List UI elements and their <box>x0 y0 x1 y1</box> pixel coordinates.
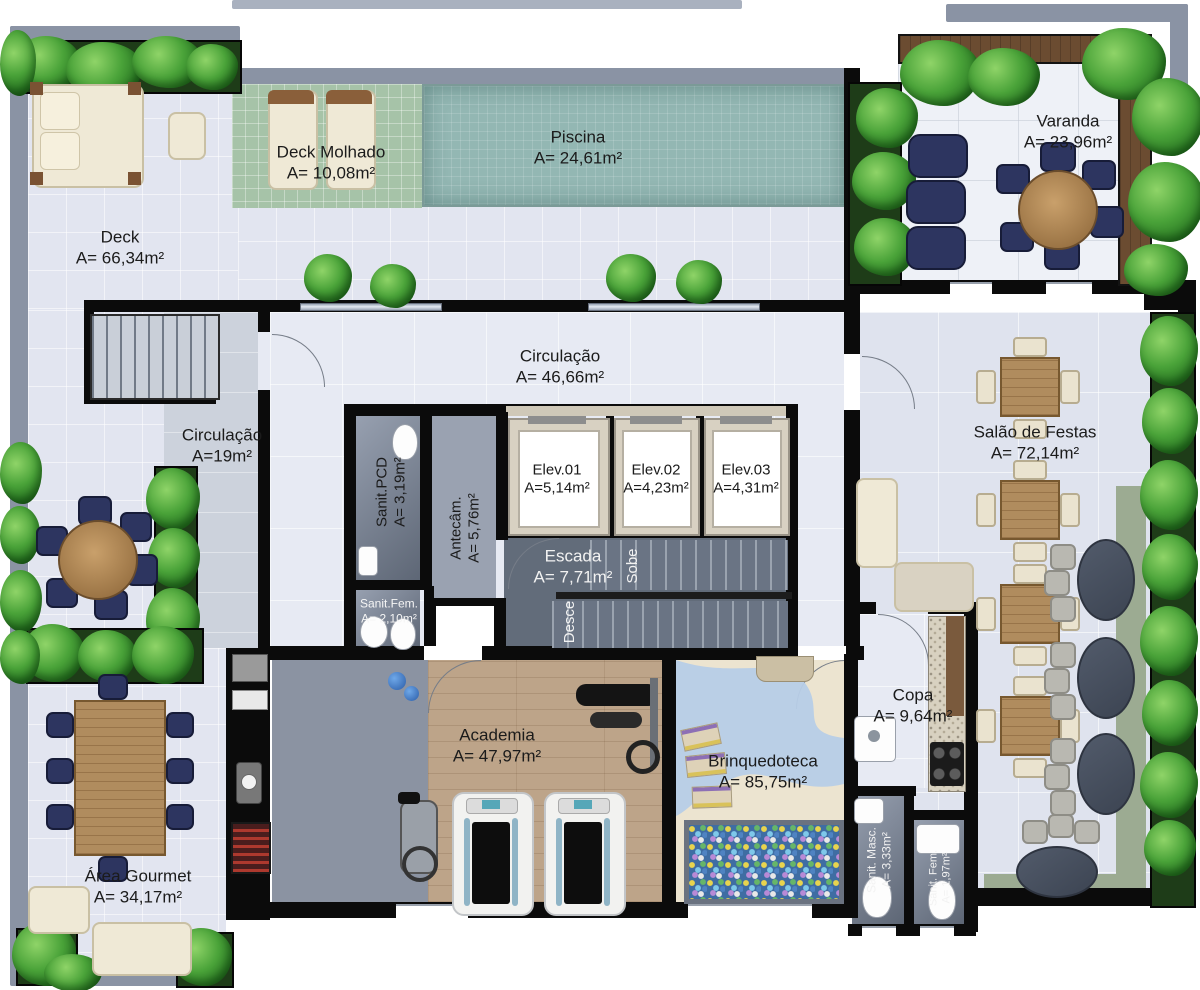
faucet <box>868 730 880 742</box>
dining-chair <box>46 804 74 830</box>
treadmill-screen <box>482 800 500 809</box>
room-area: A= 7,71m² <box>534 567 613 588</box>
pool <box>422 84 846 207</box>
room-area: A= 24,61m² <box>534 148 622 169</box>
dining-chair <box>166 758 194 784</box>
weight-bench <box>590 712 642 728</box>
oval-table <box>1016 846 1098 898</box>
pergola-post <box>30 172 43 185</box>
stair-direction: Desce <box>561 601 579 644</box>
room-name: Deck Molhado <box>277 142 386 163</box>
daybed-cushion <box>40 132 80 170</box>
room-area: A= 5,76m² <box>466 493 484 563</box>
pergola-post <box>30 82 43 95</box>
sofa <box>894 562 974 612</box>
lounger-headrest <box>326 90 372 104</box>
room-name: Elev.02 <box>623 462 688 480</box>
bike-seat <box>398 792 420 804</box>
plant <box>1142 388 1198 454</box>
door-opening <box>424 646 482 660</box>
room-area: A= 66,34m² <box>76 248 164 269</box>
dining-chair <box>1044 668 1070 694</box>
dining-chair <box>1050 738 1076 764</box>
glass-door <box>588 303 760 311</box>
room-name: Sanit. Masc. <box>864 827 879 893</box>
square-table <box>1000 357 1060 417</box>
room-label-copa: Copa A= 9,64m² <box>874 685 953 726</box>
dining-chair <box>1050 596 1076 622</box>
room-label-antecam: Antecâm. A= 5,76m² <box>448 493 485 563</box>
room-name: Deck <box>76 227 164 248</box>
parapet-top-sliver <box>232 0 742 9</box>
stair-flight-up <box>590 540 788 590</box>
exercise-ball <box>404 686 419 701</box>
dining-chair <box>976 709 996 743</box>
dining-chair <box>1050 642 1076 668</box>
dining-chair <box>1050 694 1076 720</box>
toilet <box>392 424 418 460</box>
plant <box>132 626 194 684</box>
dining-chair <box>1013 646 1047 666</box>
room-area: A= 46,66m² <box>516 367 604 388</box>
dining-chair <box>976 493 996 527</box>
shaft-void <box>436 606 494 650</box>
plant <box>1142 534 1198 600</box>
wall-segment <box>420 412 432 590</box>
treadmill-rail <box>604 818 610 906</box>
floor-plan-canvas: Deck A= 66,34m² Deck Molhado A= 10,08m² … <box>0 0 1200 990</box>
oval-table <box>1077 733 1135 815</box>
room-name: Academia <box>453 725 541 746</box>
room-name: Copa <box>874 685 953 706</box>
room-name: Sanit.PCD <box>374 457 392 527</box>
plant <box>1142 680 1198 746</box>
wall-segment <box>344 404 356 658</box>
plant <box>1124 244 1188 296</box>
armchair <box>908 134 968 178</box>
stair-label-sobe: Sobe <box>624 548 642 583</box>
room-label-escada: Escada A= 7,71m² <box>534 546 613 587</box>
plant <box>0 630 40 684</box>
room-area: A=4,23m² <box>623 480 688 498</box>
plant <box>370 264 416 308</box>
treadmill-rail <box>556 818 562 906</box>
room-name: Sanit. Fem. <box>928 850 941 906</box>
faucet <box>241 774 257 790</box>
lounger-headrest <box>268 90 314 104</box>
pergola-post <box>128 82 141 95</box>
armchair <box>906 180 966 224</box>
parapet-varanda-top <box>946 4 1188 22</box>
threshold <box>1046 282 1092 294</box>
daybed-cushion <box>40 92 80 130</box>
grill <box>231 822 271 874</box>
side-table <box>168 112 206 160</box>
room-label-elev3: Elev.03 A=4,31m² <box>713 462 778 499</box>
oval-table <box>1077 539 1135 621</box>
round-table <box>1018 170 1098 250</box>
room-label-sanit-pcd: Sanit.PCD A= 3,19m² <box>374 457 411 527</box>
plant <box>0 442 42 504</box>
stair-label-desce: Desce <box>561 601 579 644</box>
square-table <box>1000 480 1060 540</box>
dining-chair <box>976 370 996 404</box>
wall-segment <box>496 412 508 540</box>
counter-sink <box>232 690 268 710</box>
wall-segment <box>352 580 422 590</box>
threshold <box>920 926 954 936</box>
core-top-finish <box>506 406 794 416</box>
room-area: A= 34,17m² <box>85 887 192 908</box>
wall-segment <box>662 654 676 916</box>
room-name: Área Gourmet <box>85 866 192 887</box>
room-name: Varanda <box>1024 111 1112 132</box>
room-name: Circulação <box>182 425 262 446</box>
dining-chair <box>1013 564 1047 584</box>
wall-segment <box>964 602 978 932</box>
room-area: A= 9,64m² <box>874 706 953 727</box>
room-label-elev1: Elev.01 A=5,14m² <box>524 462 589 499</box>
door-opening <box>844 354 860 410</box>
dining-chair <box>1050 544 1076 570</box>
room-label-academia: Academia A= 47,97m² <box>453 725 541 766</box>
plant <box>0 506 40 564</box>
plant <box>1144 820 1196 876</box>
pergola-post <box>128 172 141 185</box>
dining-chair <box>1074 820 1100 844</box>
treadmill-belt <box>564 822 602 904</box>
room-name: Elev.03 <box>713 462 778 480</box>
dining-chair <box>166 804 194 830</box>
dining-chair <box>46 712 74 738</box>
dining-chair <box>1060 370 1080 404</box>
glass-door <box>300 303 442 311</box>
dining-chair <box>1013 337 1047 357</box>
room-name: Elev.01 <box>524 462 589 480</box>
threshold <box>862 926 896 936</box>
dining-chair <box>1013 758 1047 778</box>
room-label-varanda: Varanda A= 23,96m² <box>1024 111 1112 152</box>
room-area: A= 10,08m² <box>277 163 386 184</box>
room-label-elev2: Elev.02 A=4,23m² <box>623 462 688 499</box>
dining-chair <box>1050 790 1076 816</box>
plant <box>1140 460 1198 530</box>
round-table <box>58 520 138 600</box>
play-table <box>756 656 814 682</box>
parapet-pool-top <box>232 68 846 84</box>
plant <box>1128 162 1200 242</box>
dining-chair <box>1060 493 1080 527</box>
door-opening <box>258 332 270 390</box>
room-area: A= 3,19m² <box>392 457 410 527</box>
stair-rail <box>556 592 792 599</box>
room-label-sanit-masc: Sanit. Masc. A= 3,33m² <box>864 827 893 893</box>
room-label-piscina: Piscina A= 24,61m² <box>534 127 622 168</box>
cooktop <box>930 742 964 786</box>
room-label-sanit-fem-core: Sanit.Fem. A= 2,10m² <box>360 596 418 625</box>
treadmill-rail <box>512 818 518 906</box>
weight-bench <box>576 684 658 706</box>
room-name: Piscina <box>534 127 622 148</box>
room-name: Sanit.Fem. <box>360 596 418 611</box>
room-label-salao: Salão de Festas A= 72,14m² <box>974 422 1097 463</box>
room-name: Salão de Festas <box>974 422 1097 443</box>
sofa <box>856 478 898 568</box>
dining-chair <box>46 758 74 784</box>
threshold <box>688 904 812 918</box>
room-label-sanit-fem-small: Sanit. Fem. A= 1,97m² <box>928 850 955 906</box>
plant <box>186 44 238 90</box>
treadmill-rail <box>464 818 470 906</box>
room-area: A= 3,33m² <box>879 827 894 893</box>
elevator-door <box>528 416 586 424</box>
room-area: A= 85,75m² <box>708 772 818 793</box>
plant <box>1140 606 1198 676</box>
room-label-circulacao-corr: Circulação A=19m² <box>182 425 262 466</box>
plant <box>304 254 352 302</box>
dining-chair <box>1013 676 1047 696</box>
room-area: A= 2,10m² <box>360 611 418 626</box>
plant <box>606 254 656 302</box>
plant <box>1132 78 1200 156</box>
dining-chair <box>976 597 996 631</box>
dining-chair <box>1048 814 1074 838</box>
room-area: A= 1,97m² <box>941 850 954 906</box>
dining-chair <box>1044 570 1070 596</box>
dining-table <box>74 700 166 856</box>
room-name: Brinquedoteca <box>708 751 818 772</box>
plant <box>676 260 722 304</box>
wall-segment <box>844 300 860 650</box>
dining-chair <box>98 674 128 700</box>
dining-chair <box>166 712 194 738</box>
stair-flight-down <box>552 601 788 648</box>
oval-table <box>1077 637 1135 719</box>
room-area: A=5,14m² <box>524 480 589 498</box>
plant <box>1140 316 1198 386</box>
counter-appliance <box>232 654 268 682</box>
sofa <box>92 922 192 976</box>
armchair <box>28 886 90 934</box>
dining-chair <box>1022 820 1048 844</box>
room-area: A= 23,96m² <box>1024 132 1112 153</box>
threshold <box>950 282 992 294</box>
room-area: A=4,31m² <box>713 480 778 498</box>
dining-chair <box>1013 542 1047 562</box>
sink <box>854 798 884 824</box>
outdoor-stairs <box>90 314 220 400</box>
room-label-deck-molhado: Deck Molhado A= 10,08m² <box>277 142 386 183</box>
room-area: A= 72,14m² <box>974 443 1097 464</box>
room-area: A= 47,97m² <box>453 746 541 767</box>
elevator-door <box>720 416 772 424</box>
ball-pit <box>684 820 844 904</box>
armchair <box>906 226 966 270</box>
stair-direction: Sobe <box>624 548 642 583</box>
plant <box>0 570 42 632</box>
treadmill-belt <box>472 822 510 904</box>
room-label-area-gourmet: Área Gourmet A= 34,17m² <box>85 866 192 907</box>
wall-segment <box>912 810 968 820</box>
bike-wheel <box>402 846 438 882</box>
room-name: Circulação <box>516 346 604 367</box>
room-name: Antecâm. <box>448 493 466 563</box>
exercise-ball <box>388 672 406 690</box>
room-name: Escada <box>534 546 613 567</box>
room-label-brinquedoteca: Brinquedoteca A= 85,75m² <box>708 751 818 792</box>
room-label-deck: Deck A= 66,34m² <box>76 227 164 268</box>
plant <box>968 48 1040 106</box>
sink <box>358 546 378 576</box>
room-area: A=19m² <box>182 446 262 467</box>
room-label-circulacao-hall: Circulação A= 46,66m² <box>516 346 604 387</box>
weight-plate <box>626 740 660 774</box>
plant <box>146 468 200 530</box>
treadmill-screen <box>574 800 592 809</box>
dining-chair <box>1044 764 1070 790</box>
plant <box>1140 752 1198 818</box>
elevator-door <box>630 416 682 424</box>
